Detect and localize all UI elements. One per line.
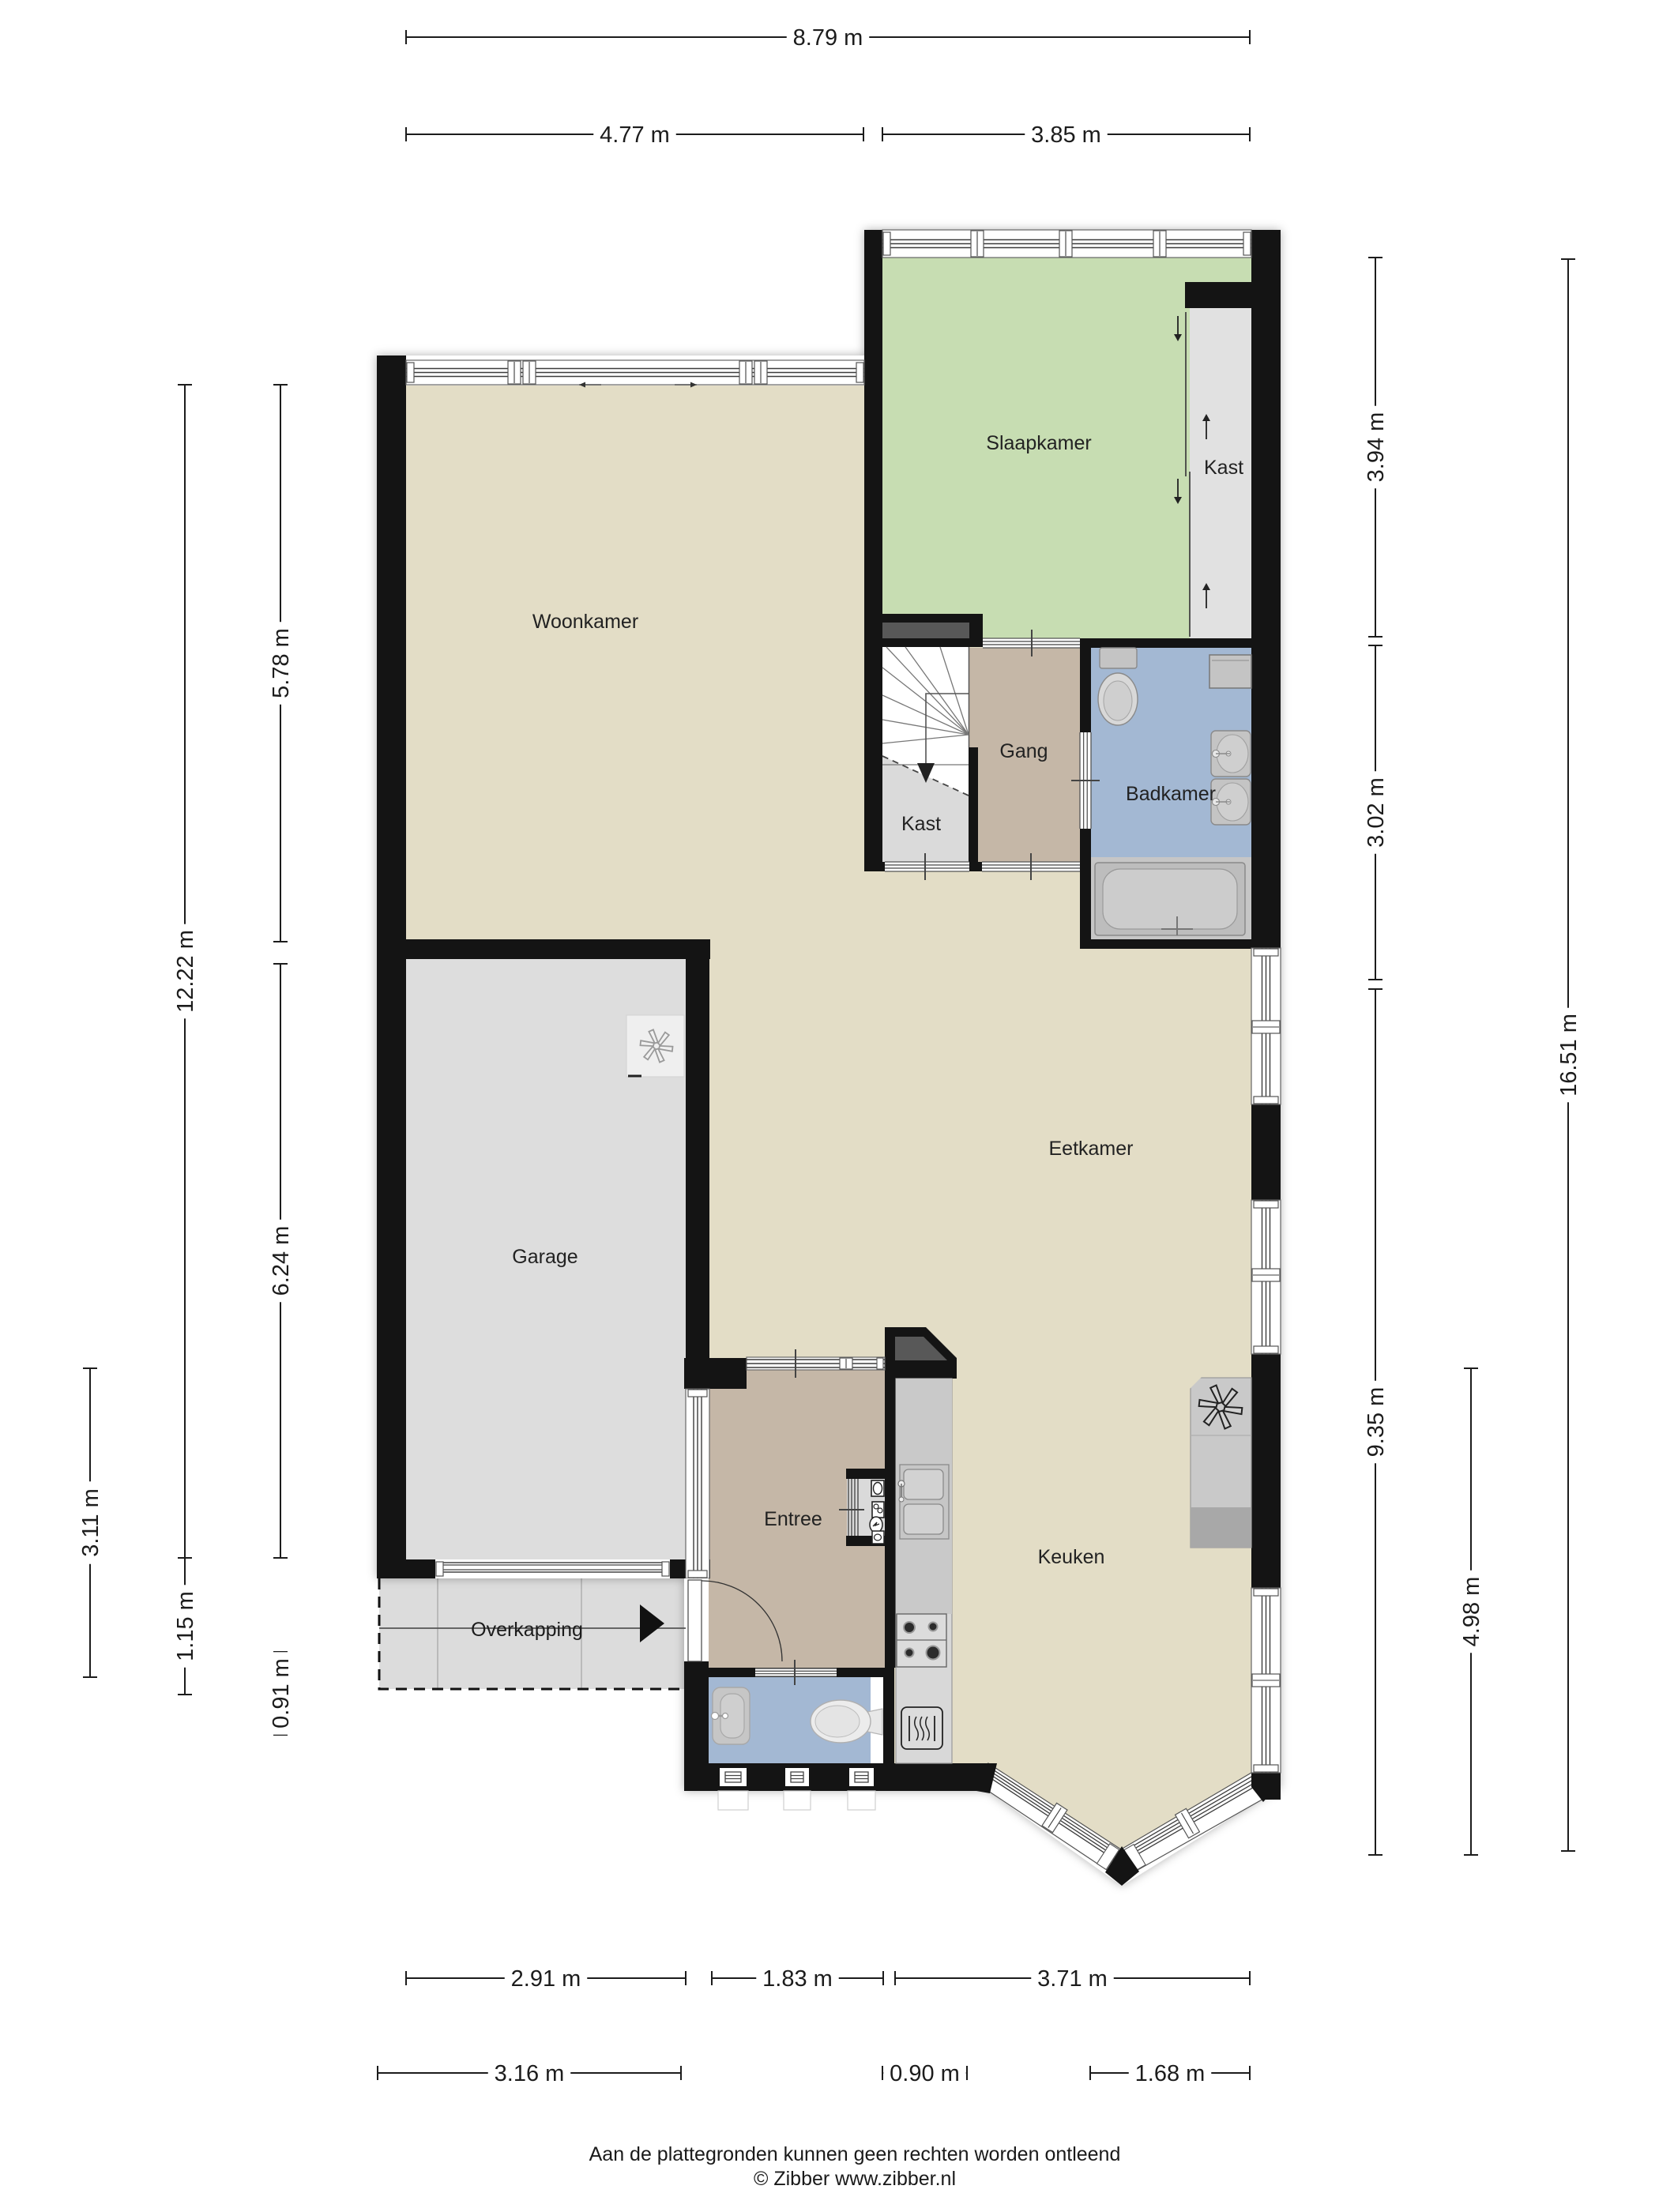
- svg-text:1.68 m: 1.68 m: [1135, 2061, 1206, 2086]
- svg-text:Gang: Gang: [999, 740, 1048, 762]
- svg-text:1.15 m: 1.15 m: [173, 1591, 198, 1661]
- svg-text:Entree: Entree: [764, 1508, 822, 1530]
- svg-text:Overkapping: Overkapping: [471, 1619, 583, 1641]
- svg-text:5.78 m: 5.78 m: [269, 628, 294, 698]
- svg-text:3.11 m: 3.11 m: [78, 1488, 103, 1557]
- svg-text:Garage: Garage: [512, 1246, 577, 1268]
- svg-text:Badkamer: Badkamer: [1126, 783, 1216, 805]
- svg-text:Aan de plattegronden kunnen ge: Aan de plattegronden kunnen geen rechten…: [589, 2143, 1121, 2165]
- svg-text:0.90 m: 0.90 m: [890, 2061, 960, 2086]
- svg-text:6.24 m: 6.24 m: [269, 1226, 294, 1296]
- svg-text:3.02 m: 3.02 m: [1364, 777, 1389, 848]
- svg-text:2.91 m: 2.91 m: [511, 1966, 581, 1992]
- svg-text:Eetkamer: Eetkamer: [1049, 1138, 1134, 1160]
- svg-text:Woonkamer: Woonkamer: [532, 611, 638, 633]
- svg-text:Slaapkamer: Slaapkamer: [986, 432, 1091, 454]
- svg-text:© Zibber www.zibber.nl: © Zibber www.zibber.nl: [754, 2168, 956, 2190]
- svg-text:0.91 m: 0.91 m: [269, 1658, 294, 1729]
- svg-text:12.22 m: 12.22 m: [173, 930, 198, 1013]
- svg-text:1.83 m: 1.83 m: [762, 1966, 833, 1992]
- svg-text:3.94 m: 3.94 m: [1364, 412, 1389, 483]
- svg-text:Keuken: Keuken: [1038, 1546, 1105, 1568]
- svg-text:3.16 m: 3.16 m: [495, 2061, 565, 2086]
- svg-text:4.77 m: 4.77 m: [600, 122, 670, 148]
- svg-text:16.51 m: 16.51 m: [1556, 1014, 1582, 1097]
- svg-text:Kast: Kast: [1204, 457, 1243, 479]
- svg-text:9.35 m: 9.35 m: [1364, 1387, 1389, 1458]
- svg-text:Kast: Kast: [901, 813, 941, 835]
- svg-text:3.85 m: 3.85 m: [1031, 122, 1101, 148]
- svg-text:8.79 m: 8.79 m: [793, 25, 863, 51]
- svg-text:3.71 m: 3.71 m: [1037, 1966, 1108, 1992]
- svg-text:4.98 m: 4.98 m: [1459, 1577, 1484, 1647]
